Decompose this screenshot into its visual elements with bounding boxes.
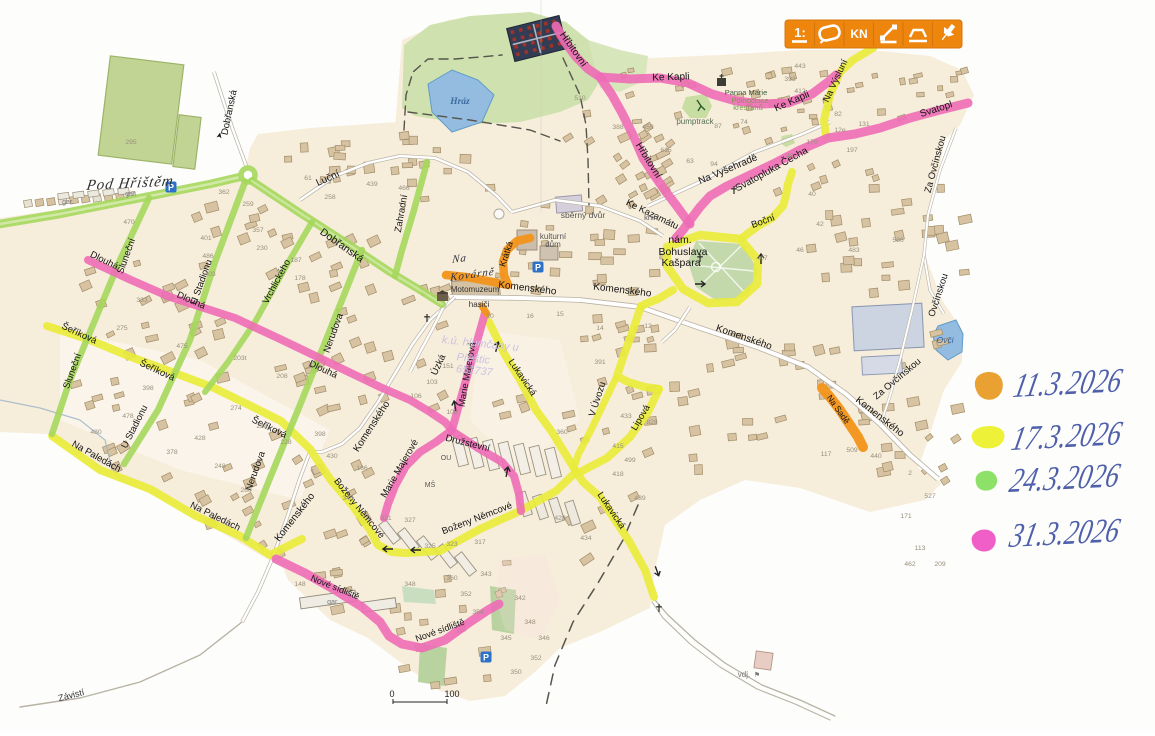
svg-text:117: 117	[821, 451, 832, 458]
svg-text:348: 348	[404, 581, 416, 588]
svg-text:Ovči: Ovči	[937, 335, 955, 345]
svg-text:203t: 203t	[233, 355, 246, 362]
svg-text:106: 106	[410, 393, 422, 400]
svg-text:knih.: knih.	[644, 213, 660, 222]
svg-text:295: 295	[125, 139, 137, 146]
svg-text:345: 345	[342, 495, 354, 502]
svg-text:258: 258	[324, 194, 336, 201]
svg-text:dům: dům	[545, 240, 561, 249]
svg-text:259: 259	[242, 201, 254, 208]
svg-text:352: 352	[460, 591, 472, 598]
svg-text:828: 828	[646, 419, 658, 426]
svg-text:462: 462	[904, 561, 916, 568]
svg-text:KN: KN	[850, 27, 867, 41]
svg-text:439: 439	[634, 495, 646, 502]
svg-text:63: 63	[686, 158, 694, 165]
svg-text:327: 327	[404, 517, 416, 524]
svg-text:42: 42	[816, 221, 824, 228]
svg-text:486: 486	[202, 253, 214, 260]
svg-text:sběrný dvůr: sběrný dvůr	[561, 210, 606, 220]
svg-text:274: 274	[230, 405, 242, 412]
svg-text:166: 166	[356, 465, 368, 472]
svg-text:OU: OU	[441, 455, 452, 462]
svg-text:228: 228	[256, 423, 268, 430]
svg-text:hasiči: hasiči	[469, 300, 490, 309]
svg-text:1:: 1:	[794, 25, 806, 40]
svg-text:403: 403	[204, 271, 216, 278]
svg-text:61: 61	[304, 175, 312, 182]
svg-text:209: 209	[934, 561, 946, 568]
svg-text:378: 378	[166, 449, 178, 456]
svg-text:478: 478	[122, 413, 134, 420]
svg-text:480: 480	[90, 429, 102, 436]
svg-text:MŠ: MŠ	[425, 480, 436, 489]
svg-text:170: 170	[806, 139, 818, 146]
svg-text:439: 439	[366, 181, 378, 188]
svg-text:418: 418	[612, 471, 624, 478]
svg-text:187: 187	[290, 257, 302, 264]
svg-text:325: 325	[424, 543, 436, 550]
svg-text:415: 415	[612, 443, 624, 450]
svg-text:317: 317	[474, 539, 486, 546]
svg-text:197: 197	[846, 147, 858, 154]
svg-text:407: 407	[756, 255, 768, 262]
svg-text:12e: 12e	[834, 127, 846, 134]
svg-text:gar.: gar.	[62, 199, 74, 206]
svg-text:333: 333	[136, 297, 148, 304]
svg-text:31.3.2026: 31.3.2026	[1006, 510, 1124, 554]
svg-text:94: 94	[710, 161, 718, 168]
svg-text:434: 434	[580, 535, 592, 542]
svg-text:352: 352	[530, 655, 542, 662]
svg-text:171: 171	[900, 513, 912, 520]
svg-text:228: 228	[280, 439, 292, 446]
svg-text:323: 323	[446, 541, 458, 548]
svg-text:470: 470	[123, 219, 135, 226]
svg-text:398: 398	[142, 385, 154, 392]
svg-text:108: 108	[446, 409, 458, 416]
svg-text:275: 275	[116, 325, 128, 332]
svg-text:17.3.2026: 17.3.2026	[1008, 413, 1126, 457]
svg-text:475: 475	[176, 343, 188, 350]
svg-text:360: 360	[446, 575, 458, 582]
svg-text:343: 343	[480, 571, 492, 578]
svg-text:428: 428	[194, 435, 206, 442]
svg-text:342: 342	[514, 595, 526, 602]
svg-text:11.3.2026: 11.3.2026	[1010, 360, 1126, 404]
svg-text:48: 48	[786, 153, 794, 160]
svg-text:10: 10	[486, 313, 494, 320]
svg-text:412: 412	[794, 88, 806, 95]
svg-text:46: 46	[796, 247, 804, 254]
svg-text:16: 16	[526, 313, 534, 320]
svg-text:321: 321	[380, 515, 392, 522]
svg-text:208: 208	[276, 373, 288, 380]
svg-text:gar.: gar.	[327, 599, 339, 606]
svg-text:P: P	[535, 263, 541, 273]
svg-text:100: 100	[444, 689, 459, 699]
svg-text:Kašpara: Kašpara	[661, 257, 700, 269]
svg-text:615: 615	[660, 147, 672, 154]
svg-text:gar.: gar.	[125, 191, 137, 198]
svg-text:440: 440	[870, 453, 882, 460]
svg-text:345: 345	[500, 635, 512, 642]
svg-text:360: 360	[556, 429, 568, 436]
svg-text:433: 433	[620, 413, 632, 420]
svg-text:499: 499	[624, 457, 636, 464]
svg-text:87: 87	[714, 123, 722, 130]
svg-text:398: 398	[314, 431, 326, 438]
svg-text:Ke Kapli: Ke Kapli	[652, 71, 690, 83]
svg-text:113: 113	[915, 545, 926, 552]
svg-text:nám.: nám.	[668, 234, 691, 246]
svg-text:15: 15	[556, 311, 564, 318]
svg-text:103: 103	[426, 379, 438, 386]
svg-text:0: 0	[389, 689, 394, 699]
svg-text:74: 74	[740, 119, 748, 126]
svg-text:346: 346	[538, 635, 550, 642]
svg-text:pumptrack: pumptrack	[676, 117, 714, 126]
svg-text:354: 354	[472, 609, 484, 616]
svg-text:230: 230	[256, 245, 268, 252]
svg-text:391: 391	[594, 359, 606, 366]
svg-text:148: 148	[294, 581, 306, 588]
svg-text:Hráz: Hráz	[449, 97, 470, 107]
svg-text:⚑: ⚑	[754, 671, 760, 679]
svg-text:vdj.: vdj.	[738, 670, 750, 679]
svg-text:428: 428	[554, 515, 566, 522]
svg-text:131: 131	[858, 121, 870, 128]
svg-text:586: 586	[892, 237, 904, 244]
svg-text:178: 178	[294, 275, 306, 282]
svg-text:14: 14	[596, 325, 604, 332]
svg-text:510: 510	[574, 95, 586, 102]
svg-text:248: 248	[214, 463, 226, 470]
svg-text:357: 357	[252, 227, 264, 234]
svg-text:527: 527	[924, 493, 936, 500]
svg-text:24.3.2026: 24.3.2026	[1006, 455, 1124, 499]
svg-text:466: 466	[398, 185, 410, 192]
svg-text:483: 483	[848, 247, 860, 254]
svg-text:459: 459	[642, 124, 654, 131]
svg-text:401: 401	[200, 235, 212, 242]
svg-text:348: 348	[524, 619, 536, 626]
svg-text:P: P	[483, 653, 489, 663]
svg-text:260: 260	[240, 487, 252, 494]
svg-text:393: 393	[784, 76, 796, 83]
svg-text:12: 12	[644, 323, 652, 330]
svg-text:2: 2	[908, 470, 912, 477]
svg-text:40: 40	[808, 191, 816, 198]
svg-text:430: 430	[326, 453, 338, 460]
svg-text:151: 151	[442, 363, 454, 370]
svg-text:509: 509	[846, 447, 858, 454]
svg-text:Na: Na	[451, 252, 468, 266]
svg-text:82: 82	[834, 111, 842, 118]
svg-text:388: 388	[612, 124, 624, 131]
svg-text:350: 350	[510, 669, 522, 676]
svg-text:443: 443	[794, 63, 806, 70]
svg-text:362: 362	[218, 189, 230, 196]
svg-text:křesťanů: křesťanů	[733, 103, 763, 112]
svg-text:Motomuzeum: Motomuzeum	[451, 285, 500, 294]
